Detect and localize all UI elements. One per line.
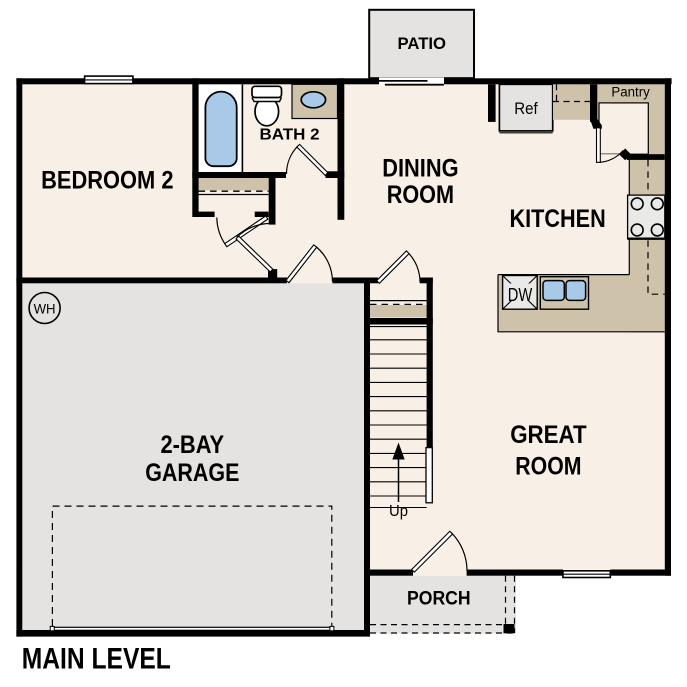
svg-text:WH: WH xyxy=(34,301,56,317)
svg-text:Pantry: Pantry xyxy=(611,85,650,100)
svg-text:Up: Up xyxy=(389,503,408,520)
svg-text:ROOM: ROOM xyxy=(515,453,581,481)
svg-text:BATH 2: BATH 2 xyxy=(260,127,320,144)
svg-text:PATIO: PATIO xyxy=(398,34,447,53)
svg-text:Ref: Ref xyxy=(514,99,538,118)
svg-text:BEDROOM 2: BEDROOM 2 xyxy=(41,166,173,194)
svg-text:2-BAY: 2-BAY xyxy=(160,431,224,459)
svg-text:PORCH: PORCH xyxy=(407,589,471,610)
svg-text:MAIN LEVEL: MAIN LEVEL xyxy=(22,642,171,675)
svg-text:ROOM: ROOM xyxy=(387,181,454,209)
svg-text:GARAGE: GARAGE xyxy=(145,459,239,487)
svg-text:KITCHEN: KITCHEN xyxy=(510,205,606,233)
svg-text:GREAT: GREAT xyxy=(510,421,586,449)
svg-text:DINING: DINING xyxy=(382,154,458,182)
svg-text:DW: DW xyxy=(508,285,533,305)
